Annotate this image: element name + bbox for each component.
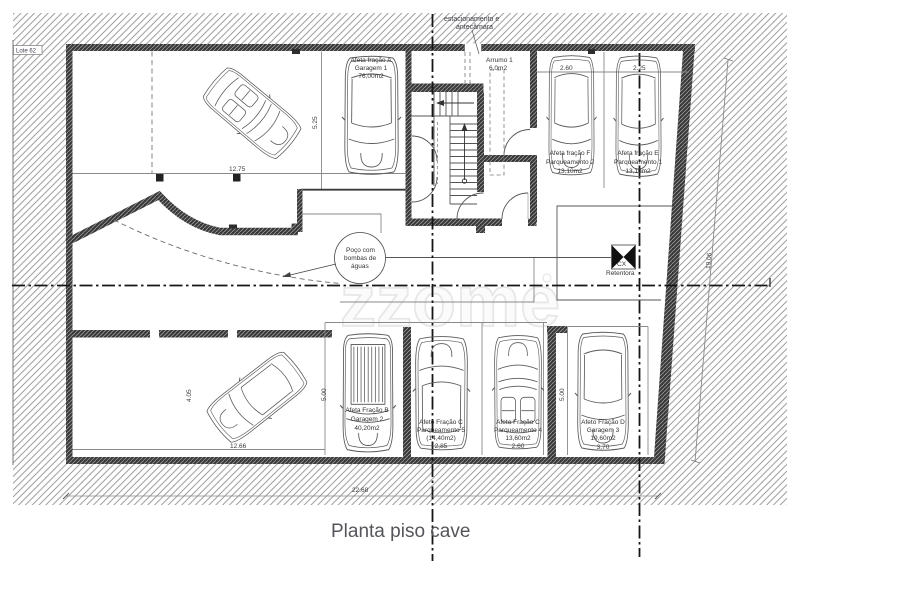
svg-text:Parqueamento 4: Parqueamento 4: [494, 427, 542, 434]
svg-text:5.00: 5.00: [559, 388, 566, 401]
svg-text:5.25: 5.25: [312, 116, 319, 129]
svg-text:Retentora: Retentora: [606, 270, 635, 277]
svg-text:(14,40m2): (14,40m2): [426, 435, 456, 442]
svg-text:13,10m2: 13,10m2: [557, 168, 583, 175]
svg-text:Afeto Fração D: Afeto Fração D: [581, 419, 625, 426]
svg-text:2.60: 2.60: [512, 443, 525, 450]
svg-text:6,0m2: 6,0m2: [489, 65, 507, 72]
svg-text:19,60m2: 19,60m2: [590, 435, 616, 442]
svg-text:estacionamento e: estacionamento e: [444, 16, 499, 23]
svg-text:Afeta Fração B: Afeta Fração B: [345, 407, 388, 414]
svg-text:Planta piso cave: Planta piso cave: [331, 521, 470, 542]
svg-text:40,20m2: 40,20m2: [354, 425, 380, 432]
svg-text:13,60m2: 13,60m2: [505, 435, 531, 442]
svg-text:Afeta Fração C: Afeta Fração C: [496, 419, 540, 426]
svg-text:antecâmara: antecâmara: [456, 24, 493, 31]
svg-text:águas: águas: [351, 263, 369, 270]
svg-text:12.75: 12.75: [229, 166, 246, 173]
svg-text:76,00m2: 76,00m2: [358, 73, 384, 80]
svg-text:Parqueamento 2: Parqueamento 2: [546, 159, 594, 166]
svg-text:2.60: 2.60: [560, 65, 573, 72]
svg-text:12.66: 12.66: [230, 443, 247, 450]
svg-text:Afeta fração A: Afeta fração A: [351, 57, 392, 64]
svg-text:Arrumo 1: Arrumo 1: [486, 57, 513, 64]
svg-text:Parqueamento 1: Parqueamento 1: [614, 159, 662, 166]
svg-text:Lote 62: Lote 62: [16, 49, 37, 55]
svg-text:CX: CX: [617, 261, 627, 268]
svg-text:22.68: 22.68: [352, 487, 369, 494]
svg-text:5.00: 5.00: [321, 388, 328, 401]
svg-text:Poço com: Poço com: [346, 247, 375, 254]
svg-text:Parqueamento 5: Parqueamento 5: [417, 427, 465, 434]
svg-text:3,70: 3,70: [597, 444, 610, 451]
svg-text:Garagem 3: Garagem 3: [587, 427, 620, 434]
svg-text:bombas de: bombas de: [344, 255, 377, 262]
svg-text:Garagem 1: Garagem 1: [355, 65, 388, 72]
svg-text:Afeto Fração C: Afeto Fração C: [419, 419, 463, 426]
svg-text:2,85: 2,85: [435, 443, 448, 450]
svg-text:Afeta fração E: Afeta fração E: [617, 150, 659, 157]
svg-text:19.06: 19.06: [705, 252, 713, 269]
svg-text:Afeta fração F: Afeta fração F: [550, 150, 591, 157]
svg-text:4.05: 4.05: [186, 389, 193, 402]
svg-text:13,10m2: 13,10m2: [625, 168, 651, 175]
svg-text:Garagem 2: Garagem 2: [351, 416, 384, 423]
